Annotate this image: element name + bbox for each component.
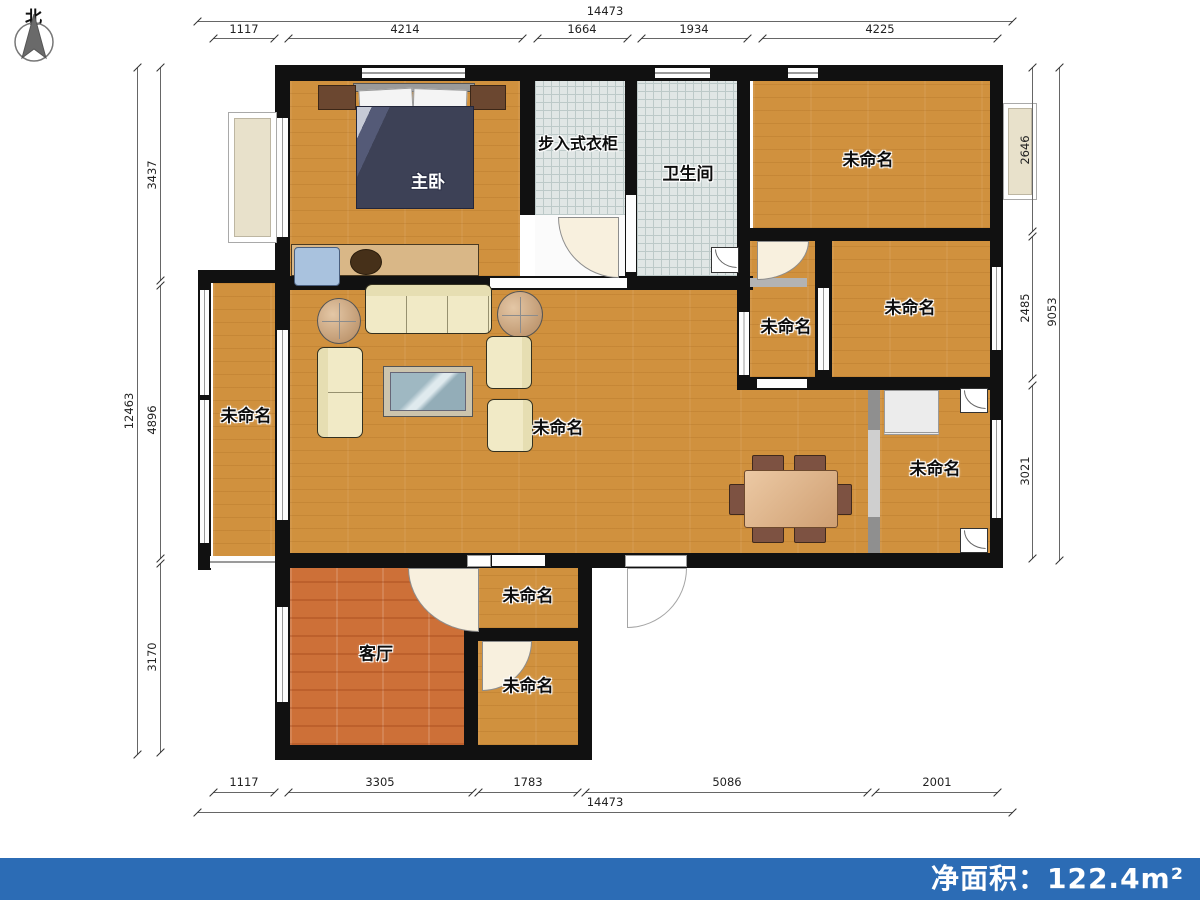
room-label-unnamed-balcony: 未命名: [221, 402, 272, 427]
side-table-round: [317, 298, 361, 344]
room-label-walk-in-closet: 步入式衣柜: [538, 130, 618, 154]
dimension-line: [288, 792, 473, 793]
wall: [478, 628, 578, 641]
wall: [198, 270, 290, 283]
desk-chair: [294, 247, 340, 286]
dimension-value: 1117: [229, 22, 258, 36]
window: [277, 607, 288, 702]
window: [362, 68, 465, 78]
opening: [739, 312, 749, 375]
window: [200, 400, 209, 543]
room-label-unnamed-east: 未命名: [885, 294, 936, 319]
dimension-value: 4225: [865, 22, 894, 36]
dimension-value: 4214: [390, 22, 419, 36]
window: [200, 290, 209, 395]
dimension-value: 2001: [922, 775, 951, 789]
bed-duvet: [356, 106, 474, 209]
dimension-value: 3021: [1018, 456, 1032, 485]
window: [992, 267, 1001, 350]
dimension-value: 3170: [145, 642, 159, 671]
side-table-round: [497, 291, 543, 338]
room-label-master-bedroom: 主卧: [411, 168, 445, 193]
wall: [740, 228, 1003, 241]
desk-object: [350, 249, 382, 275]
room-label-living-room: 客厅: [359, 640, 393, 665]
dimension-value: 14473: [587, 4, 624, 18]
dimension-line: [197, 812, 1013, 813]
dimension-value: 2485: [1018, 293, 1032, 322]
room-label-unnamed-northeast: 未命名: [843, 146, 894, 171]
dimension-line: [1032, 236, 1033, 379]
window: [788, 68, 818, 78]
dimension-line: [1032, 67, 1033, 232]
dimension-line: [641, 38, 748, 39]
corner-basin-icon: [960, 528, 988, 553]
room-label-unnamed-south-upper: 未命名: [503, 582, 554, 607]
sofa-three-seat: [365, 284, 492, 334]
dining-table: [744, 470, 838, 528]
room-label-unnamed-south-lower: 未命名: [503, 672, 554, 697]
window: [992, 420, 1001, 518]
dimension-line: [537, 38, 628, 39]
wall: [578, 553, 592, 760]
entrance-door-arc: [627, 568, 687, 628]
sofa-two-seat: [317, 347, 363, 438]
window: [655, 68, 710, 78]
bay-window-sill: [234, 118, 271, 237]
dimension-line: [213, 792, 275, 793]
dimension-value: 1664: [567, 22, 596, 36]
half-wall-glass: [868, 430, 880, 517]
shower-corner-icon: [711, 247, 739, 273]
door-leaf: [625, 555, 687, 567]
room-label-unnamed-southeast: 未命名: [910, 455, 961, 480]
dimension-line: [288, 38, 523, 39]
dimension-value: 1117: [229, 775, 258, 789]
compass-north-icon: [8, 14, 64, 66]
dimension-value: 14473: [587, 795, 624, 809]
dimension-line: [875, 792, 998, 793]
dimension-value: 12463: [122, 393, 136, 430]
dimension-line: [160, 563, 161, 753]
window: [277, 330, 288, 520]
dimension-line: [213, 38, 275, 39]
dimension-line: [1059, 67, 1060, 561]
dimension-value: 5086: [712, 775, 741, 789]
dimension-line: [137, 67, 138, 755]
door-gap: [490, 278, 627, 288]
corner-basin-icon: [960, 388, 988, 413]
armchair: [486, 336, 532, 389]
window: [210, 556, 275, 568]
dimension-value: 9053: [1045, 297, 1059, 326]
dimension-value: 1934: [679, 22, 708, 36]
room-label-bathroom: 卫生间: [663, 160, 714, 185]
dimension-line: [160, 285, 161, 559]
armchair: [487, 399, 533, 452]
door-leaf: [467, 555, 491, 567]
dimension-line: [1032, 385, 1033, 559]
dimension-value: 4896: [145, 405, 159, 434]
nightstand: [318, 85, 356, 110]
dimension-line: [585, 792, 868, 793]
window: [277, 118, 288, 237]
wall: [275, 745, 592, 760]
dimension-value: 3437: [145, 160, 159, 189]
room-label-unnamed-small-center: 未命名: [761, 313, 812, 338]
door-gap: [757, 379, 807, 388]
fridge: [884, 390, 939, 435]
coffee-table-glass: [390, 372, 466, 411]
dimension-value: 3305: [365, 775, 394, 789]
footer-bar: 净面积：122.4m²: [0, 858, 1200, 900]
nightstand: [470, 85, 506, 110]
room-label-unnamed-hall: 未命名: [533, 414, 584, 439]
dimension-line: [478, 792, 578, 793]
door-gap: [626, 195, 636, 272]
net-area-text: 净面积：122.4m²: [931, 858, 1184, 900]
floorplan-canvas: 北: [0, 0, 1200, 900]
window: [818, 288, 829, 370]
opening: [492, 555, 545, 566]
dimension-line: [762, 38, 998, 39]
wall: [520, 65, 535, 215]
dimension-line: [160, 67, 161, 281]
dimension-value: 2646: [1018, 135, 1032, 164]
dimension-value: 1783: [513, 775, 542, 789]
